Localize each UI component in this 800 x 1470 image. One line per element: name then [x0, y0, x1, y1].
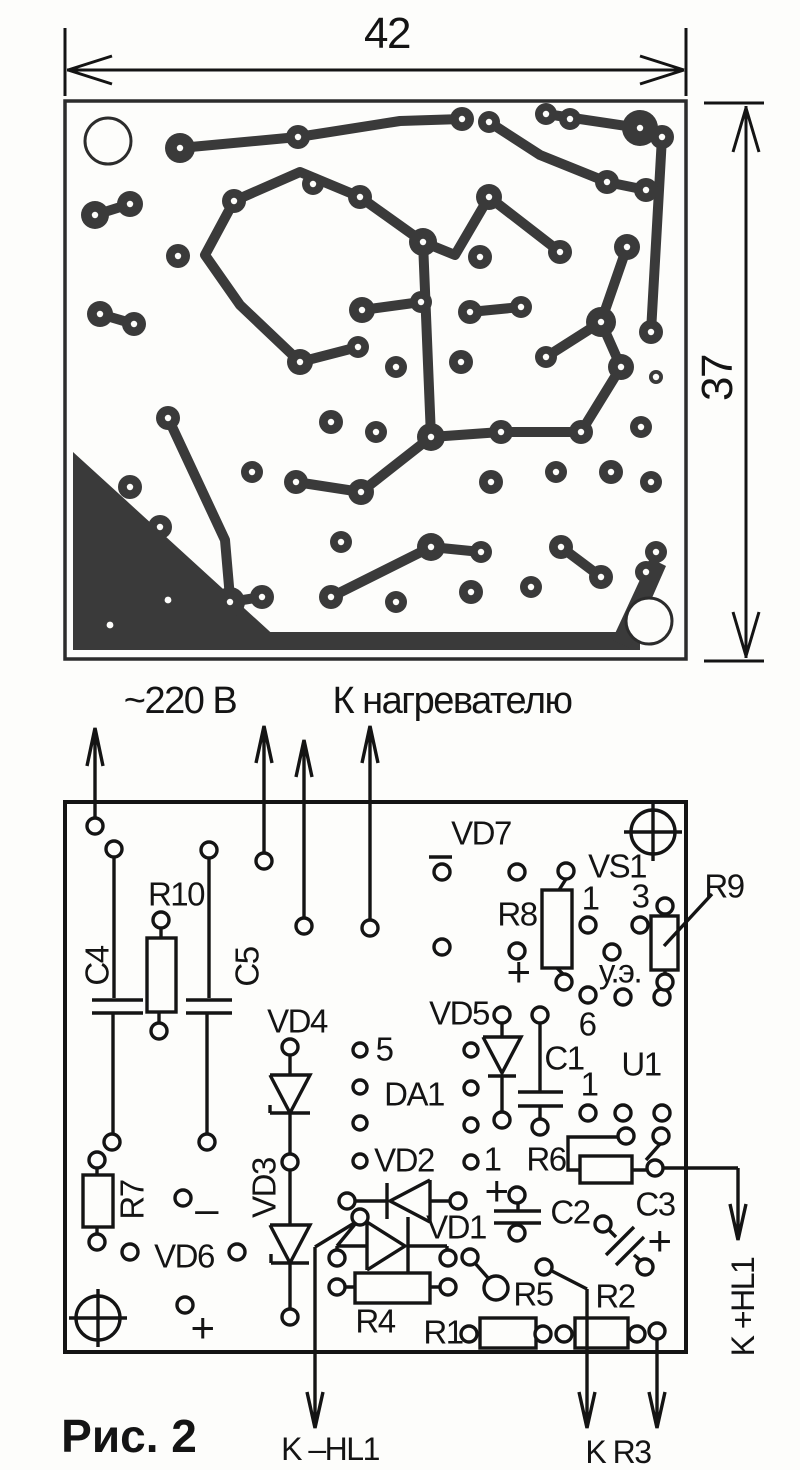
pin-label-1-vs1: 1: [582, 882, 599, 915]
resistor-r6-symbol: [568, 1137, 661, 1183]
diode-vd4-symbol: [270, 1055, 310, 1154]
label-vd5: VD5: [429, 997, 489, 1030]
polarity-plus-r8: +: [506, 951, 529, 993]
mounting-hole-top-left: [85, 118, 131, 164]
figure-pcb-drawing: 42 37 ~220 В К нагревателю VD7 VS1 R8 1 …: [0, 0, 800, 1470]
label-vd6: VD6: [154, 1240, 214, 1273]
capacitor-c3-symbol: [606, 1227, 644, 1265]
connection-heater-label: К нагревателю: [332, 682, 571, 720]
pin-label-6-c1: 6: [579, 1008, 596, 1041]
label-da1: DA1: [384, 1078, 444, 1111]
label-c1: C1: [544, 1042, 583, 1075]
label-r5: R5: [513, 1278, 552, 1311]
resistor-r7-symbol: [83, 1168, 113, 1234]
label-r7: R7: [116, 1180, 149, 1219]
connection-hl1-minus-label: K –HL1: [281, 1433, 379, 1465]
polarity-plus-c3: +: [647, 1220, 670, 1262]
wire-r3-left: [548, 1269, 595, 1428]
label-c5: C5: [231, 947, 264, 986]
label-r10: R10: [148, 878, 204, 911]
copper-side-board: [65, 101, 686, 659]
resistor-r10-symbol: [147, 928, 176, 1023]
label-r4: R4: [355, 1305, 394, 1338]
label-vd1: VD1: [426, 1211, 486, 1244]
label-vd7: VD7: [451, 817, 511, 850]
pin-label-5-da1: 5: [376, 1033, 393, 1066]
resistor-r1-symbol: [477, 1318, 539, 1348]
connection-mains-label: ~220 В: [124, 682, 237, 720]
resistor-r8-symbol: [542, 879, 572, 974]
polarity-minus-vd6: –: [195, 1188, 217, 1230]
polarity-plus-bottom-left: +: [190, 1307, 213, 1349]
mounting-cross-bottom-left: [69, 1289, 127, 1347]
pin-label-3-vs1: 3: [632, 880, 649, 913]
connection-hl1-plus-label: K +HL1: [727, 1258, 759, 1357]
figure-caption: Рис. 2: [61, 1413, 197, 1459]
pin-label-ue: у.э.: [599, 955, 641, 988]
label-vd3: VD3: [248, 1158, 281, 1218]
wire-hl1-plus: [663, 1168, 746, 1240]
label-r8: R8: [497, 898, 536, 931]
label-vd2: VD2: [374, 1144, 434, 1177]
pcb-artwork: [0, 0, 800, 1470]
arrows-heater: [256, 726, 378, 920]
label-c2: C2: [550, 1196, 589, 1229]
label-r2: R2: [595, 1280, 634, 1313]
resistor-r4-symbol: [345, 1273, 440, 1303]
dimension-height-label: 37: [696, 355, 740, 401]
resistor-r2-symbol: [572, 1318, 632, 1348]
connection-r3-label: K R3: [585, 1436, 650, 1468]
dimension-width-label: 42: [364, 12, 410, 56]
label-vd4: VD4: [267, 1005, 327, 1038]
label-c4: C4: [81, 946, 114, 985]
trimmer-r5-symbol: [474, 1262, 508, 1300]
diode-vd5-symbol: [483, 1023, 521, 1112]
label-c3: C3: [635, 1188, 674, 1221]
label-u1: U1: [621, 1048, 660, 1081]
label-r9: R9: [704, 870, 743, 903]
arrow-mains: [87, 728, 103, 818]
capacitor-c4-symbol: [92, 857, 143, 1134]
label-r6: R6: [526, 1143, 565, 1176]
mounting-hole-bottom-right: [626, 598, 672, 644]
pin-label-1-c1: 1: [581, 1068, 598, 1101]
label-r1: R1: [423, 1316, 462, 1349]
polarity-plus-c2: +: [484, 1170, 507, 1212]
